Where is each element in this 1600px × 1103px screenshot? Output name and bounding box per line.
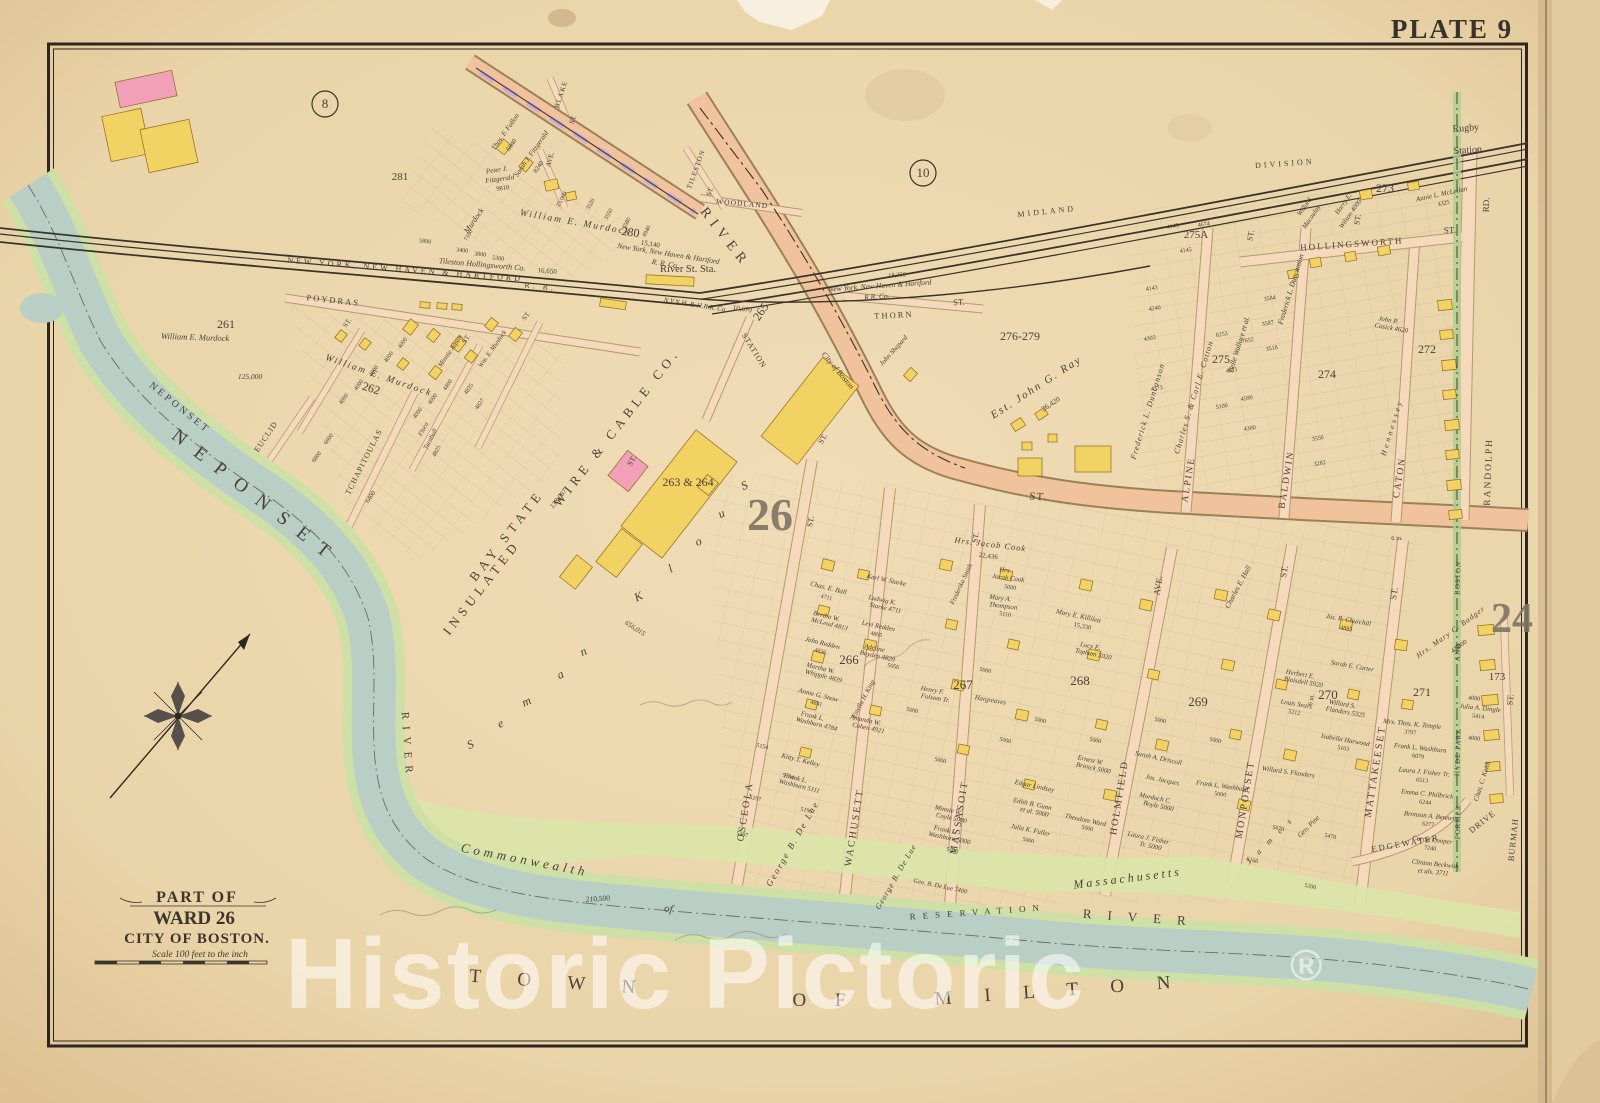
building-footprint: [1309, 257, 1321, 268]
label-streets: ST.: [1388, 587, 1400, 601]
building-footprint: [1490, 793, 1504, 803]
building-footprint: [1438, 299, 1453, 310]
label-streets: RD.: [1481, 197, 1492, 212]
label-owners: 6513: [1416, 777, 1429, 784]
building-footprint: [1449, 509, 1463, 519]
label-blocks: 10: [917, 165, 930, 180]
label-railroads: River St. Sta.: [660, 264, 716, 275]
label-blocks: 267: [953, 677, 973, 692]
label-numbers: 5300: [492, 255, 505, 262]
label-streets: THORN: [874, 309, 914, 321]
label-blocks: 271: [1413, 685, 1431, 699]
building-footprint: [1440, 329, 1454, 339]
building-footprint: [1015, 709, 1029, 721]
label-blocks: 261: [217, 317, 235, 331]
label-streets: ST.: [805, 516, 816, 528]
legend-city: CITY OF BOSTON.: [124, 931, 270, 947]
building-footprint: [437, 303, 447, 310]
building-footprint: [1095, 719, 1108, 730]
label-blocks: 8: [322, 96, 329, 111]
building-footprint: [1480, 659, 1496, 670]
legend-scale-caption: Scale 100 feet to the inch: [152, 949, 248, 960]
building-footprint: [1445, 419, 1460, 430]
building-footprint: [1018, 458, 1042, 476]
label-streets: ST.: [1278, 565, 1290, 579]
paper-stain: [1168, 114, 1212, 142]
building-footprint: [1139, 599, 1153, 611]
map-canvas: RIVERST.6 in.6 in.WOODLANDBLAKEST.AVE.TI…: [0, 0, 1600, 1103]
label-blocks: 269: [1188, 694, 1208, 709]
building-footprint: [452, 304, 462, 311]
label-streets: ST.: [1029, 490, 1048, 503]
building-footprint: [869, 705, 882, 716]
label-blocks: 26: [747, 489, 793, 540]
label-blocks: 24: [1491, 596, 1533, 642]
building-footprint: [420, 302, 430, 309]
building-footprint: [1283, 749, 1297, 761]
building-footprint: [1221, 659, 1235, 671]
label-owners: 6079: [1412, 753, 1425, 760]
atlas-page: RIVERST.6 in.6 in.WOODLANDBLAKEST.AVE.TI…: [0, 0, 1600, 1103]
building-footprint: [1447, 479, 1462, 490]
label-water: 210,500: [585, 893, 610, 903]
building-footprint: [957, 744, 970, 755]
label-blocks: 173: [1489, 671, 1506, 683]
legend-part-of: PART OF: [156, 889, 238, 906]
building-footprint: [1442, 359, 1457, 370]
label-numbers: 3400: [456, 247, 469, 254]
building-footprint: [1446, 449, 1460, 459]
label-civic: BOSTON: [1453, 561, 1462, 595]
building-footprint: [945, 619, 958, 630]
label-railroads: 18,356: [888, 271, 907, 279]
label-numbers: 4000: [1468, 735, 1481, 742]
building-footprint: [1075, 446, 1111, 472]
paper-stain: [865, 69, 945, 121]
building-footprint: [1229, 729, 1242, 740]
label-streets: 6 in.: [1391, 535, 1403, 542]
label-numbers: 4000: [1468, 695, 1481, 702]
label-railroads: Station: [1453, 144, 1482, 157]
building-footprint: [1347, 689, 1360, 700]
building-footprint: [1484, 729, 1500, 740]
label-owners: 6277: [1422, 821, 1435, 828]
label-blocks: 275A: [1184, 229, 1209, 241]
label-blocks: 281: [392, 171, 409, 183]
label-owners: 3797: [1404, 729, 1417, 736]
label-owners: 5414: [1472, 713, 1485, 720]
building-footprint: [1394, 639, 1407, 651]
label-streets: ST.: [953, 297, 965, 308]
label-blocks: 266: [839, 652, 859, 667]
label-civic: HYDE PARK: [1453, 728, 1463, 776]
building-footprint: [1155, 739, 1169, 751]
building-footprint: [1079, 579, 1093, 591]
building-footprint: [1443, 389, 1457, 399]
label-railroads: Rugby: [1452, 122, 1479, 135]
label-railroads: R.R. Co.: [863, 291, 890, 302]
watermark-text: Historic Pictoric: [285, 918, 1086, 1030]
plate-title: PLATE 9: [1391, 14, 1513, 44]
label-owners: 7240: [1424, 845, 1437, 852]
label-blocks: 273: [1376, 181, 1394, 195]
building-footprint: [1007, 639, 1020, 650]
watermark-registered-icon: ®: [1290, 941, 1322, 990]
building-footprint: [939, 559, 953, 571]
label-streets: ST.: [1504, 693, 1515, 705]
building-footprint: [1355, 759, 1369, 771]
label-blocks: 274: [1318, 367, 1336, 381]
building-footprint: [1267, 609, 1281, 621]
label-numbers: 3800: [474, 251, 487, 258]
building-footprint: [1022, 442, 1032, 450]
label-blocks: 263 & 264: [662, 475, 713, 489]
building-footprint: [1482, 694, 1499, 705]
building-footprint: [1147, 669, 1160, 680]
label-blocks: 272: [1418, 342, 1436, 356]
building-footprint: [1048, 434, 1057, 442]
label-streets: ST.: [1443, 225, 1456, 236]
legend-ward: WARD 26: [153, 908, 235, 929]
label-owners: 6244: [1419, 799, 1432, 806]
label-numbers: 5890: [419, 238, 432, 245]
label-blocks: 276-279: [1000, 329, 1040, 343]
building-footprint: [1359, 189, 1372, 200]
label-blocks: 268: [1070, 673, 1090, 688]
label-numbers: 125,000: [238, 372, 263, 381]
building-footprint: [1407, 181, 1419, 191]
label-streets: ST.: [1245, 230, 1256, 242]
building-footprint: [1344, 251, 1356, 262]
paper-stain: [548, 9, 576, 27]
building-footprint: [1401, 699, 1413, 709]
